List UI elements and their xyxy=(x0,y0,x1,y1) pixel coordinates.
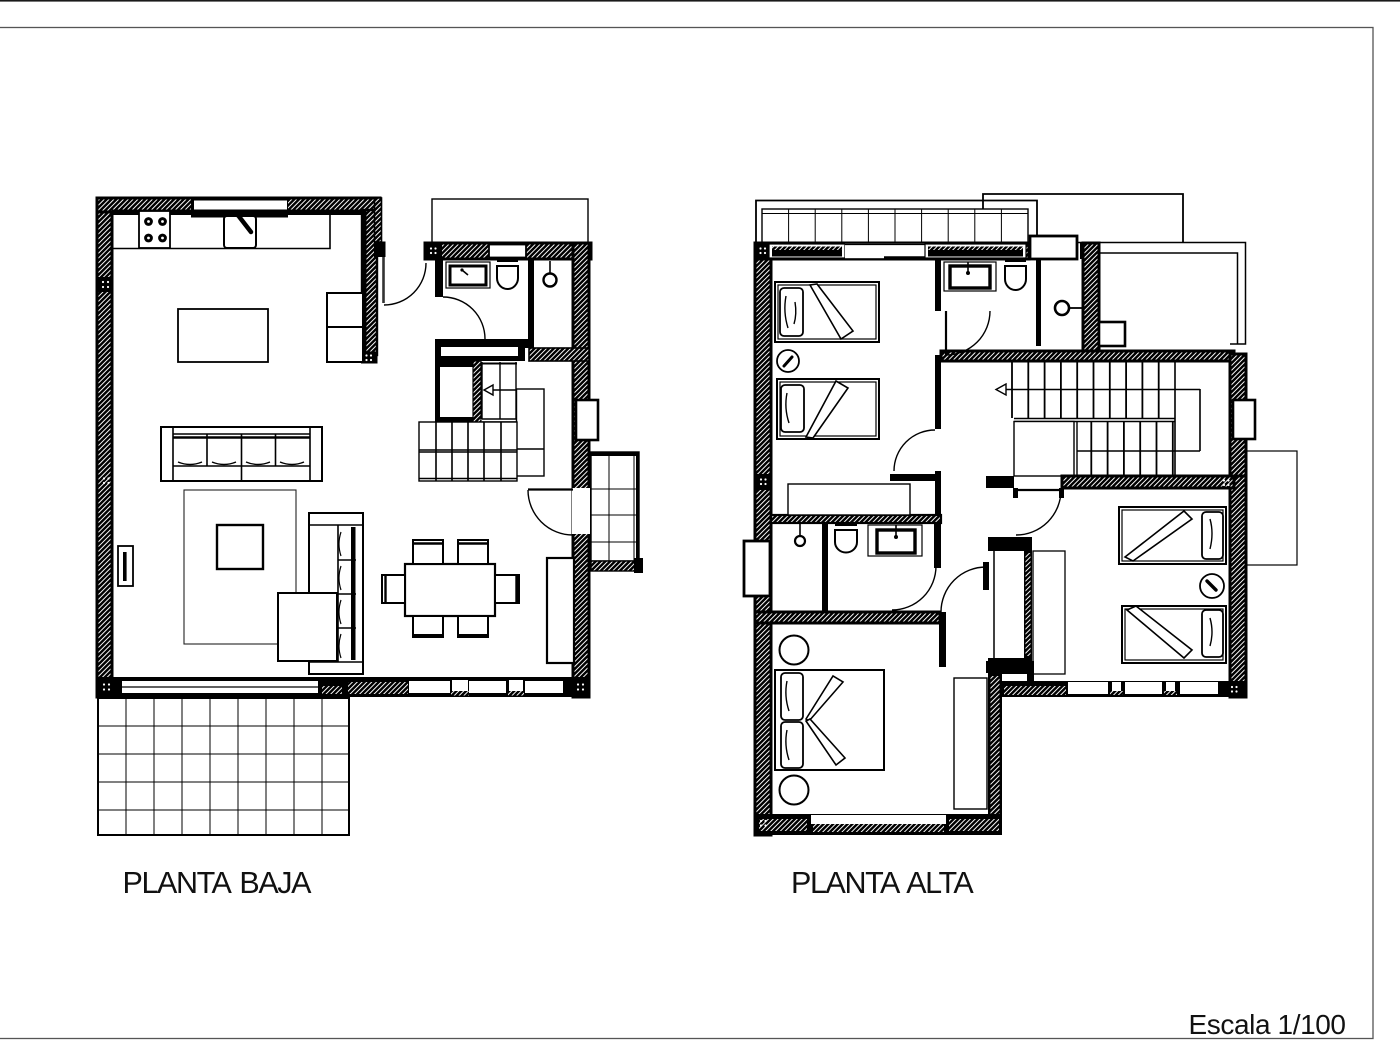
svg-text:Escala 1/100: Escala 1/100 xyxy=(1189,1009,1346,1040)
svg-text:PLANTA BAJA: PLANTA BAJA xyxy=(123,866,313,900)
svg-text:PLANTA ALTA: PLANTA ALTA xyxy=(791,866,974,900)
